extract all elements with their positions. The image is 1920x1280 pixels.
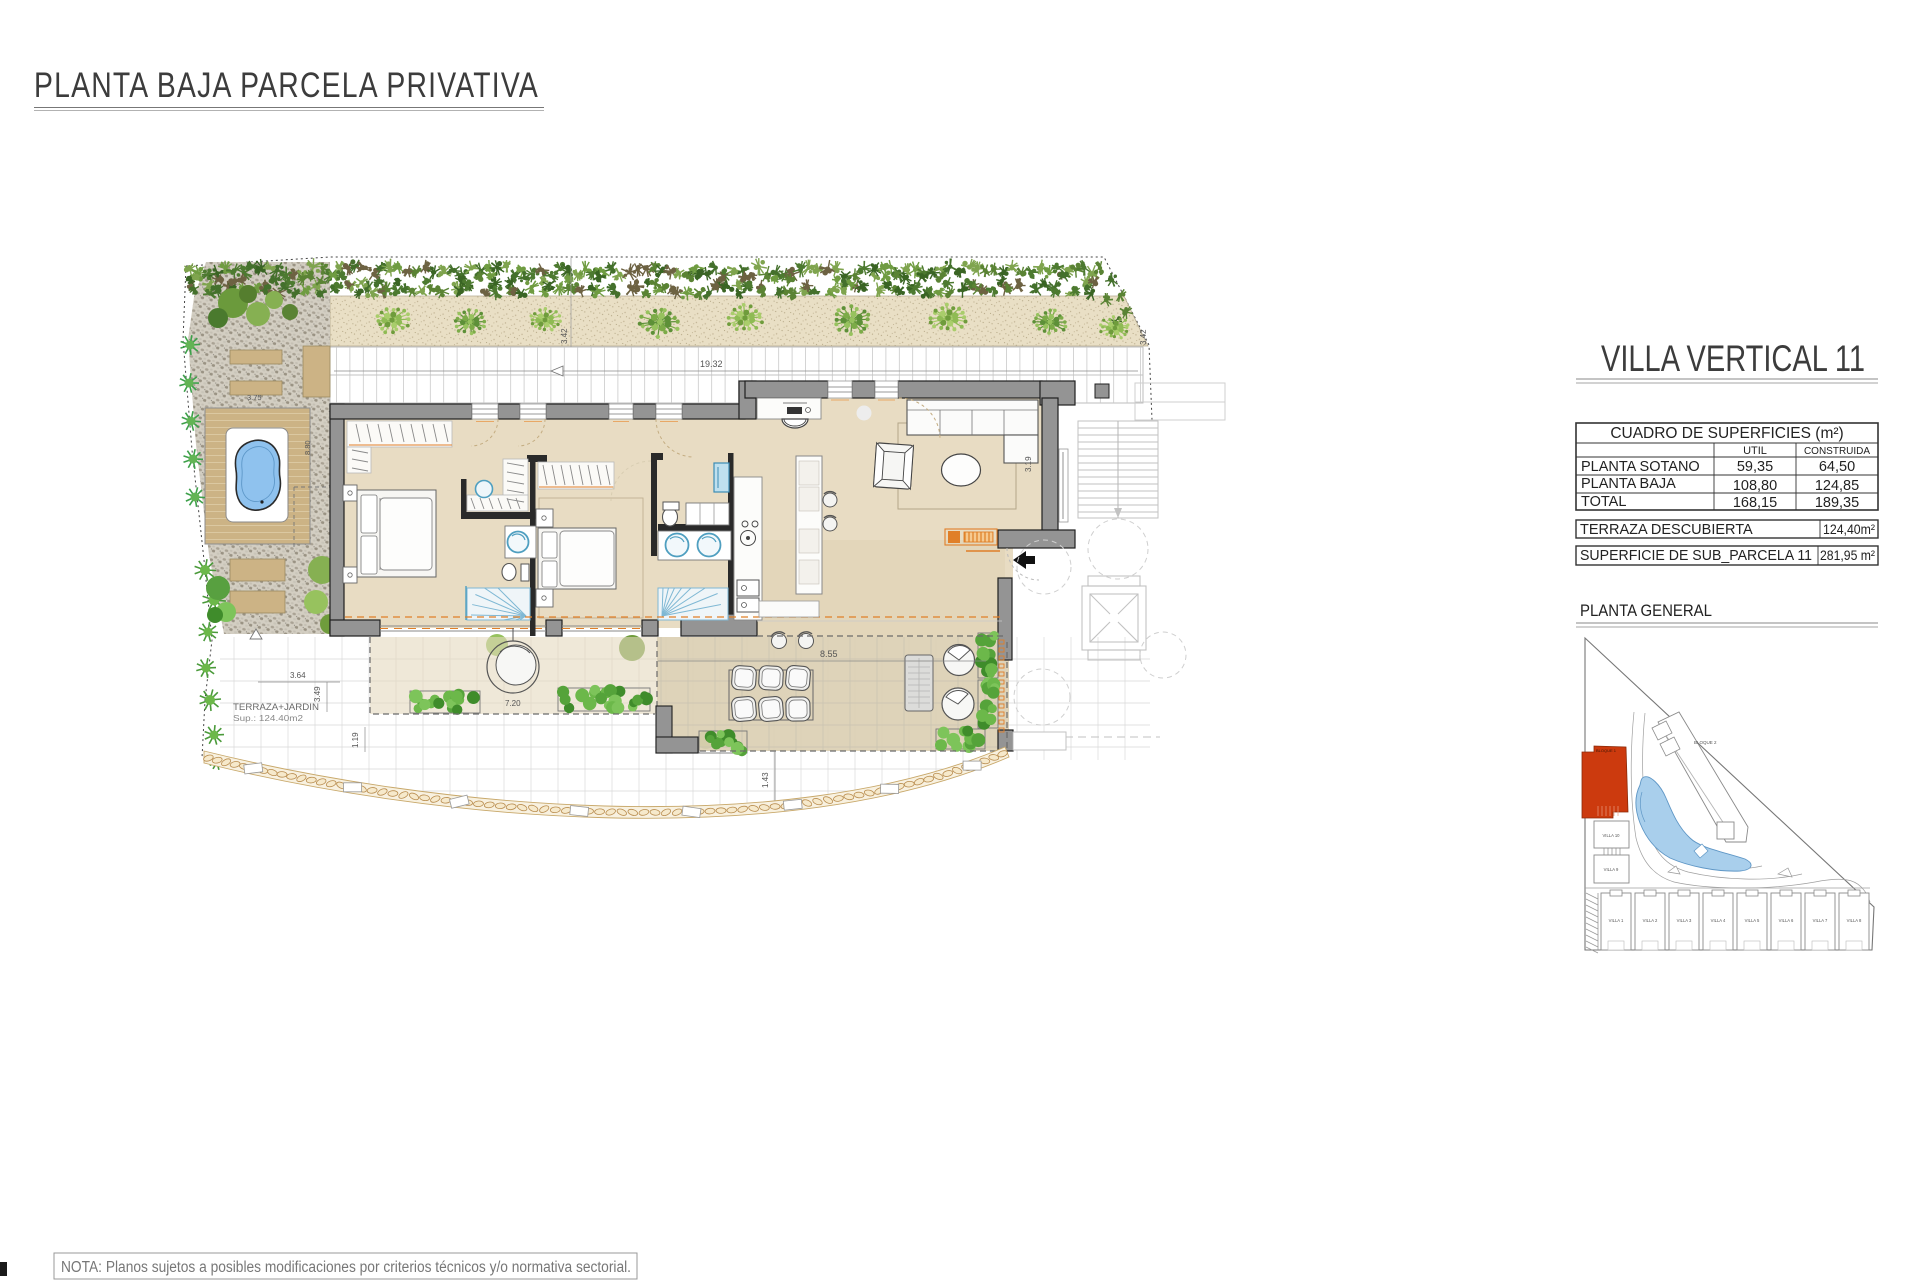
svg-text:TERRAZA+JARDIN: TERRAZA+JARDIN: [233, 702, 319, 713]
svg-text:Sup.: 124.40m2: Sup.: 124.40m2: [233, 713, 303, 723]
svg-text:7.20: 7.20: [505, 699, 521, 708]
svg-text:189,35: 189,35: [1815, 495, 1859, 511]
svg-text:CUADRO DE SUPERFICIES (m²): CUADRO DE SUPERFICIES (m²): [1610, 425, 1843, 442]
svg-text:PLANTA BAJA: PLANTA BAJA: [1581, 476, 1676, 492]
svg-text:1.19: 1.19: [351, 732, 360, 748]
svg-text:SUPERFICIE DE SUB_PARCELA 11: SUPERFICIE DE SUB_PARCELA 11: [1580, 548, 1812, 564]
svg-text:VILLA 8: VILLA 8: [1847, 918, 1862, 923]
svg-text:VILLA 5: VILLA 5: [1745, 918, 1760, 923]
svg-text:3.42: 3.42: [1139, 329, 1148, 345]
svg-text:UTIL: UTIL: [1743, 445, 1767, 457]
svg-text:VILLA 2: VILLA 2: [1643, 918, 1658, 923]
svg-text:3.75: 3.75: [247, 393, 262, 402]
svg-text:CONSTRUIDA: CONSTRUIDA: [1804, 446, 1870, 457]
svg-text:3.42: 3.42: [560, 328, 569, 344]
svg-text:168,15: 168,15: [1733, 495, 1777, 511]
svg-text:PLANTA GENERAL: PLANTA GENERAL: [1580, 602, 1712, 620]
svg-text:8.55: 8.55: [820, 649, 838, 659]
svg-text:281,95 m²: 281,95 m²: [1820, 547, 1875, 563]
svg-text:3.64: 3.64: [290, 671, 306, 680]
svg-text:VILLA 10: VILLA 10: [1603, 833, 1621, 838]
svg-text:VILLA 4: VILLA 4: [1711, 918, 1726, 923]
svg-text:19.32: 19.32: [700, 359, 723, 369]
svg-text:VILLA 6: VILLA 6: [1779, 918, 1794, 923]
svg-text:VILLA 7: VILLA 7: [1813, 918, 1828, 923]
svg-text:TERRAZA DESCUBIERTA: TERRAZA DESCUBIERTA: [1580, 522, 1753, 538]
svg-text:3.19: 3.19: [1024, 456, 1033, 472]
svg-text:TOTAL: TOTAL: [1581, 494, 1626, 510]
svg-text:3.49: 3.49: [313, 686, 322, 702]
svg-text:PLANTA SOTANO: PLANTA SOTANO: [1581, 459, 1700, 475]
svg-text:PLANTA BAJA PARCELA PRIVATIVA: PLANTA BAJA PARCELA PRIVATIVA: [34, 66, 539, 105]
svg-text:108,80: 108,80: [1733, 478, 1777, 494]
svg-text:VILLA VERTICAL 11: VILLA VERTICAL 11: [1601, 338, 1865, 379]
svg-text:64,50: 64,50: [1819, 459, 1855, 475]
svg-text:BLOQUE 2: BLOQUE 2: [1694, 740, 1717, 745]
svg-text:VILLA 1: VILLA 1: [1609, 918, 1624, 923]
svg-text:59,35: 59,35: [1737, 459, 1773, 475]
svg-text:NOTA: Planos sujetos a posible: NOTA: Planos sujetos a posibles modifica…: [61, 1259, 631, 1276]
svg-text:VILLA 3: VILLA 3: [1677, 918, 1692, 923]
svg-text:1.43: 1.43: [761, 772, 770, 788]
svg-text:124,40m²: 124,40m²: [1823, 521, 1875, 537]
svg-text:8.80: 8.80: [303, 440, 312, 455]
svg-text:124,85: 124,85: [1815, 478, 1859, 494]
svg-text:VILLA 9: VILLA 9: [1604, 867, 1619, 872]
svg-text:BLOQUE 1: BLOQUE 1: [1596, 748, 1617, 753]
